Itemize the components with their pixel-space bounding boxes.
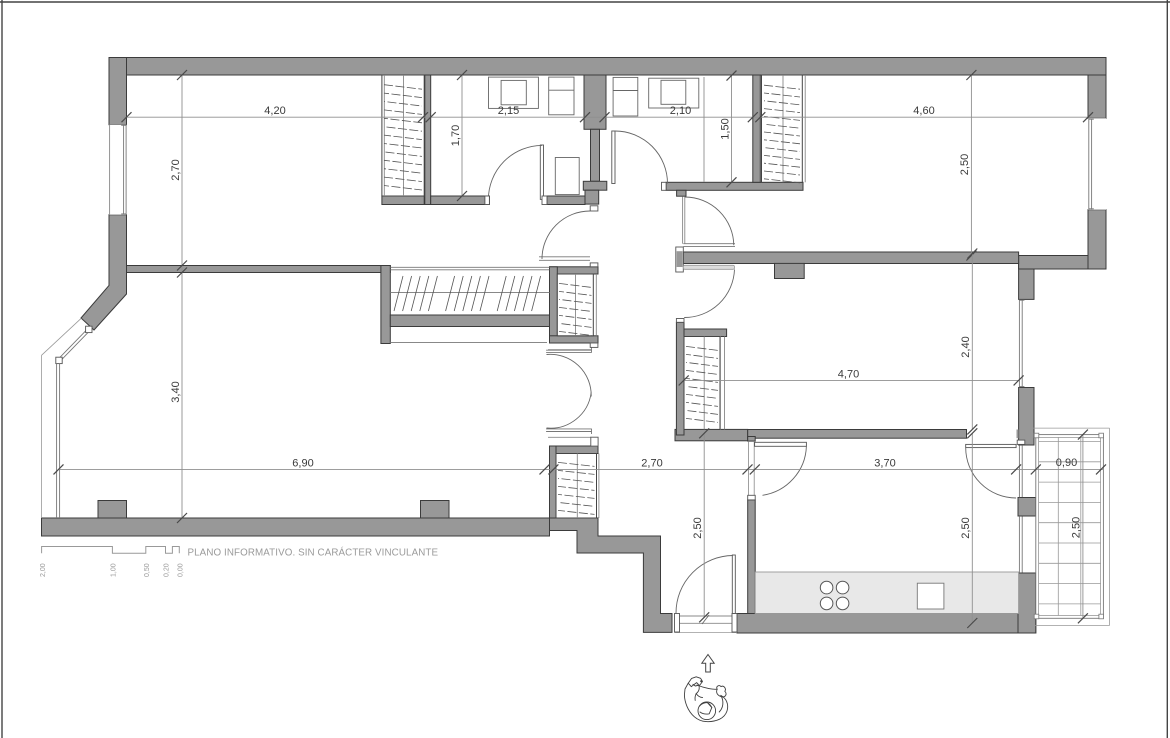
- svg-text:2,15: 2,15: [498, 105, 519, 117]
- svg-text:2,50: 2,50: [960, 517, 972, 538]
- svg-text:6,90: 6,90: [292, 457, 313, 469]
- svg-text:2,10: 2,10: [670, 105, 691, 117]
- svg-text:3,40: 3,40: [170, 381, 182, 402]
- svg-text:2,00: 2,00: [40, 563, 47, 577]
- svg-text:PLANO INFORMATIVO. SIN CARÁCTE: PLANO INFORMATIVO. SIN CARÁCTER VINCULAN…: [188, 548, 439, 559]
- svg-text:0,90: 0,90: [1056, 457, 1077, 469]
- svg-text:2,50: 2,50: [959, 154, 971, 175]
- svg-text:1,70: 1,70: [450, 125, 462, 146]
- svg-text:4,20: 4,20: [264, 105, 285, 117]
- svg-text:2,70: 2,70: [641, 457, 662, 469]
- svg-text:0,50: 0,50: [144, 563, 151, 577]
- svg-text:2,40: 2,40: [960, 336, 972, 357]
- svg-text:1,50: 1,50: [719, 118, 731, 139]
- svg-text:1,00: 1,00: [111, 563, 118, 577]
- svg-text:2,70: 2,70: [170, 159, 182, 180]
- svg-text:4,70: 4,70: [838, 368, 859, 380]
- svg-text:0,00: 0,00: [178, 563, 185, 577]
- svg-text:0,20: 0,20: [164, 563, 171, 577]
- svg-text:2,50: 2,50: [1071, 517, 1083, 538]
- svg-text:3,70: 3,70: [874, 457, 895, 469]
- svg-text:2,50: 2,50: [692, 517, 704, 538]
- svg-text:4,60: 4,60: [913, 105, 934, 117]
